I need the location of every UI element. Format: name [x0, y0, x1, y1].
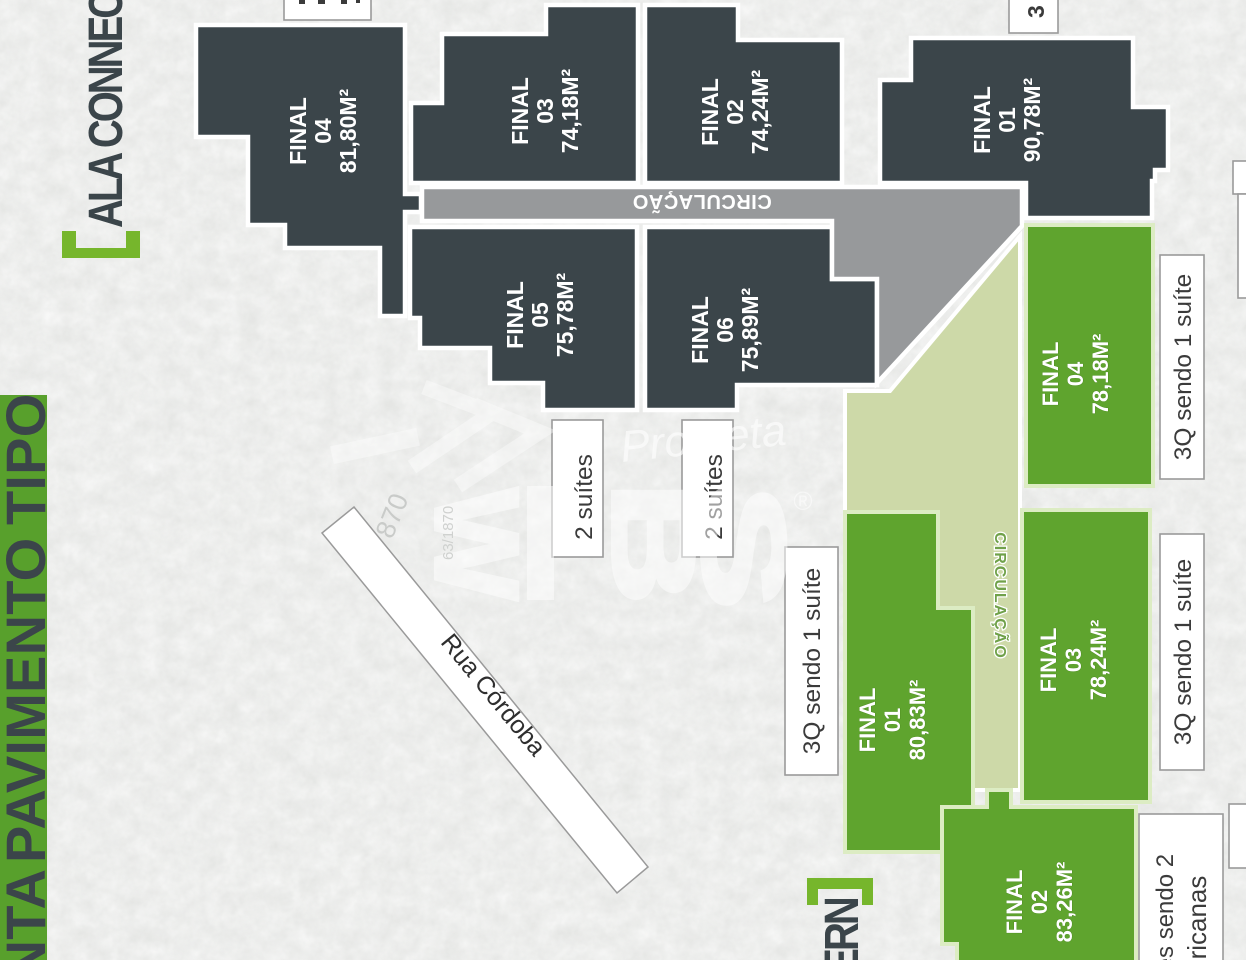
svg-text:3: 3 [1023, 5, 1049, 18]
svg-text:FINAL: FINAL [855, 688, 880, 753]
svg-text:04: 04 [310, 118, 336, 144]
svg-text:ALA CONNECT: ALA CONNECT [80, 0, 133, 228]
svg-text:02: 02 [722, 99, 748, 125]
svg-text:MODERN: MODERN [816, 899, 869, 960]
svg-text:FINAL: FINAL [687, 296, 713, 364]
svg-text:04: 04 [1063, 361, 1088, 386]
svg-text:06: 06 [712, 317, 738, 343]
svg-text:PAVIMENTO: PAVIMENTO [0, 538, 57, 863]
svg-text:FINAL: FINAL [502, 281, 528, 349]
svg-text:PLANTA: PLANTA [0, 869, 57, 960]
svg-text:78,18M²: 78,18M² [1088, 334, 1113, 415]
svg-text:®: ® [793, 486, 812, 516]
svg-text:81,80M²: 81,80M² [335, 88, 361, 173]
svg-text:CIRCULAÇÃO: CIRCULAÇÃO [991, 532, 1011, 660]
svg-text:FINAL: FINAL [1038, 342, 1063, 407]
svg-text:75,89M²: 75,89M² [737, 287, 763, 372]
svg-text:02: 02 [1027, 890, 1052, 914]
svg-text:W: W [410, 488, 542, 600]
svg-text:FINAL: FINAL [1036, 628, 1061, 693]
svg-text:75,78M²: 75,78M² [552, 272, 578, 357]
svg-text:suítes sendo 2: suítes sendo 2 [1152, 854, 1179, 960]
svg-text:80,83M²: 80,83M² [905, 680, 930, 761]
svg-text:03: 03 [532, 98, 558, 124]
svg-text:FINAL: FINAL [507, 77, 533, 145]
svg-text:TIPO: TIPO [0, 394, 57, 525]
svg-text:63/1870: 63/1870 [440, 506, 457, 560]
svg-text:01: 01 [880, 708, 905, 732]
svg-text:FINAL: FINAL [697, 78, 723, 146]
svg-text:03: 03 [1061, 648, 1086, 672]
svg-text:CIRCULAÇÃO: CIRCULAÇÃO [632, 190, 771, 213]
svg-text:01: 01 [994, 107, 1020, 133]
svg-text:FINAL: FINAL [969, 86, 995, 154]
svg-text:78,24M²: 78,24M² [1086, 620, 1111, 701]
svg-text:FINAL: FINAL [285, 97, 311, 165]
svg-text:3Q sendo 1 suíte: 3Q sendo 1 suíte [1170, 559, 1197, 746]
svg-text:90,78M²: 90,78M² [1019, 77, 1045, 162]
svg-text:S: S [678, 484, 810, 610]
svg-text:74,24M²: 74,24M² [747, 69, 773, 154]
svg-text:05: 05 [527, 302, 553, 328]
svg-text:74,18M²: 74,18M² [557, 68, 583, 153]
svg-text:FINAL: FINAL [1002, 870, 1027, 935]
svg-text:3Q sendo 1 suíte: 3Q sendo 1 suíte [1170, 274, 1197, 461]
svg-text:83,26M²: 83,26M² [1052, 862, 1077, 943]
svg-text:americanas: americanas [1182, 876, 1212, 960]
